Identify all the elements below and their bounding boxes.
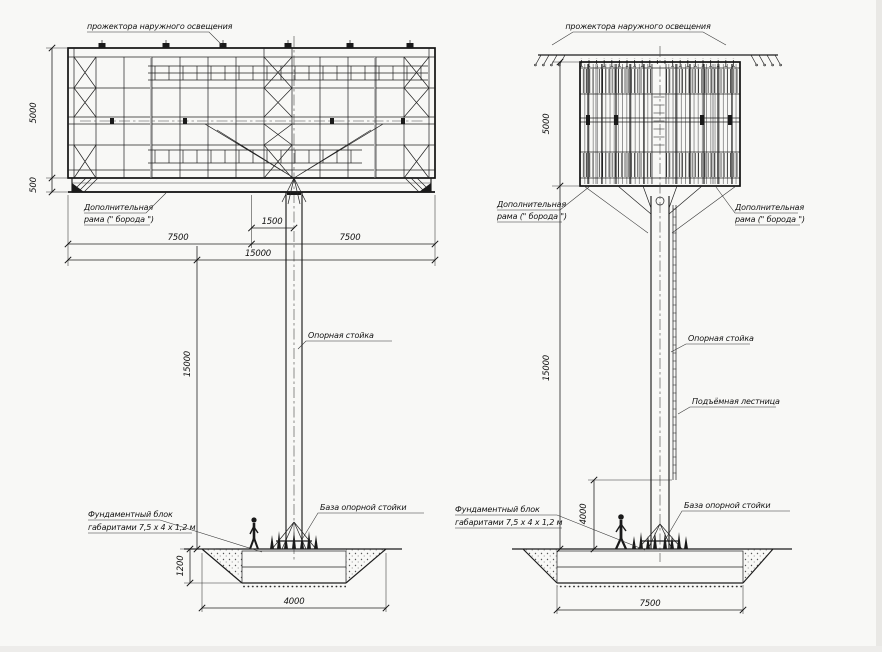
front-extra-frame-label-1: Дополнительная	[83, 203, 153, 212]
front-dim-offset: 1500	[262, 217, 283, 227]
side-ladder-label: Подъёмная лестница	[692, 397, 780, 406]
blueprint-page: 5000 500 прожектора наружного освещения …	[0, 0, 882, 652]
front-dim-pit-width-label: 4000	[284, 597, 305, 607]
front-post-base-label: База опорной стойки	[320, 503, 406, 512]
side-floodlights-label: прожектора наружного освещения	[565, 22, 711, 31]
front-upper-band	[148, 66, 428, 80]
side-extra-frame-left-2: рама (" борода ")	[496, 212, 567, 221]
front-foundation-label-1: Фундаментный блок	[88, 510, 173, 519]
front-dim-skirt-height: 500	[29, 177, 39, 193]
side-dim-ladder-clearance-label: 4000	[579, 504, 589, 525]
page-edge-bottom	[0, 646, 882, 652]
side-foundation-label-2: габаритами 7,5 х 4 х 1,2 м	[455, 518, 563, 527]
side-dim-post-height-label: 15000	[542, 355, 552, 381]
side-extra-frame-right-2: рама (" борода ")	[734, 215, 805, 224]
side-dim-panel-height-label: 5000	[542, 114, 552, 135]
front-dim-foundation-depth-label: 1200	[176, 556, 186, 577]
front-dim-post-height-label: 15000	[183, 351, 193, 377]
front-lower-band	[148, 150, 362, 163]
front-dim-left-half: 7500	[168, 233, 189, 243]
front-foundation-label-2: габаритами 7,5 х 4 х 1,2 м	[88, 523, 196, 532]
front-dim-total-width: 15000	[245, 249, 271, 259]
front-support-post-label: Опорная стойка	[308, 331, 374, 340]
side-dim-foundation-width-label: 7500	[640, 599, 661, 609]
side-post-base-label: База опорной стойки	[684, 501, 770, 510]
front-dim-right-half: 7500	[340, 233, 361, 243]
side-extra-frame-right-1: Дополнительная	[734, 203, 804, 212]
billboard-drawing: 5000 500 прожектора наружного освещения …	[0, 0, 882, 652]
side-extra-frame-left-1: Дополнительная	[496, 200, 566, 209]
front-extra-frame-label-2: рама (" борода ")	[83, 215, 154, 224]
side-foundation-label-1: Фундаментный блок	[455, 505, 540, 514]
front-dim-panel-height: 5000	[29, 103, 39, 124]
side-support-post-label: Опорная стойка	[688, 334, 754, 343]
front-floodlights-label: прожектора наружного освещения	[87, 22, 233, 31]
page-edge-right	[876, 0, 882, 652]
